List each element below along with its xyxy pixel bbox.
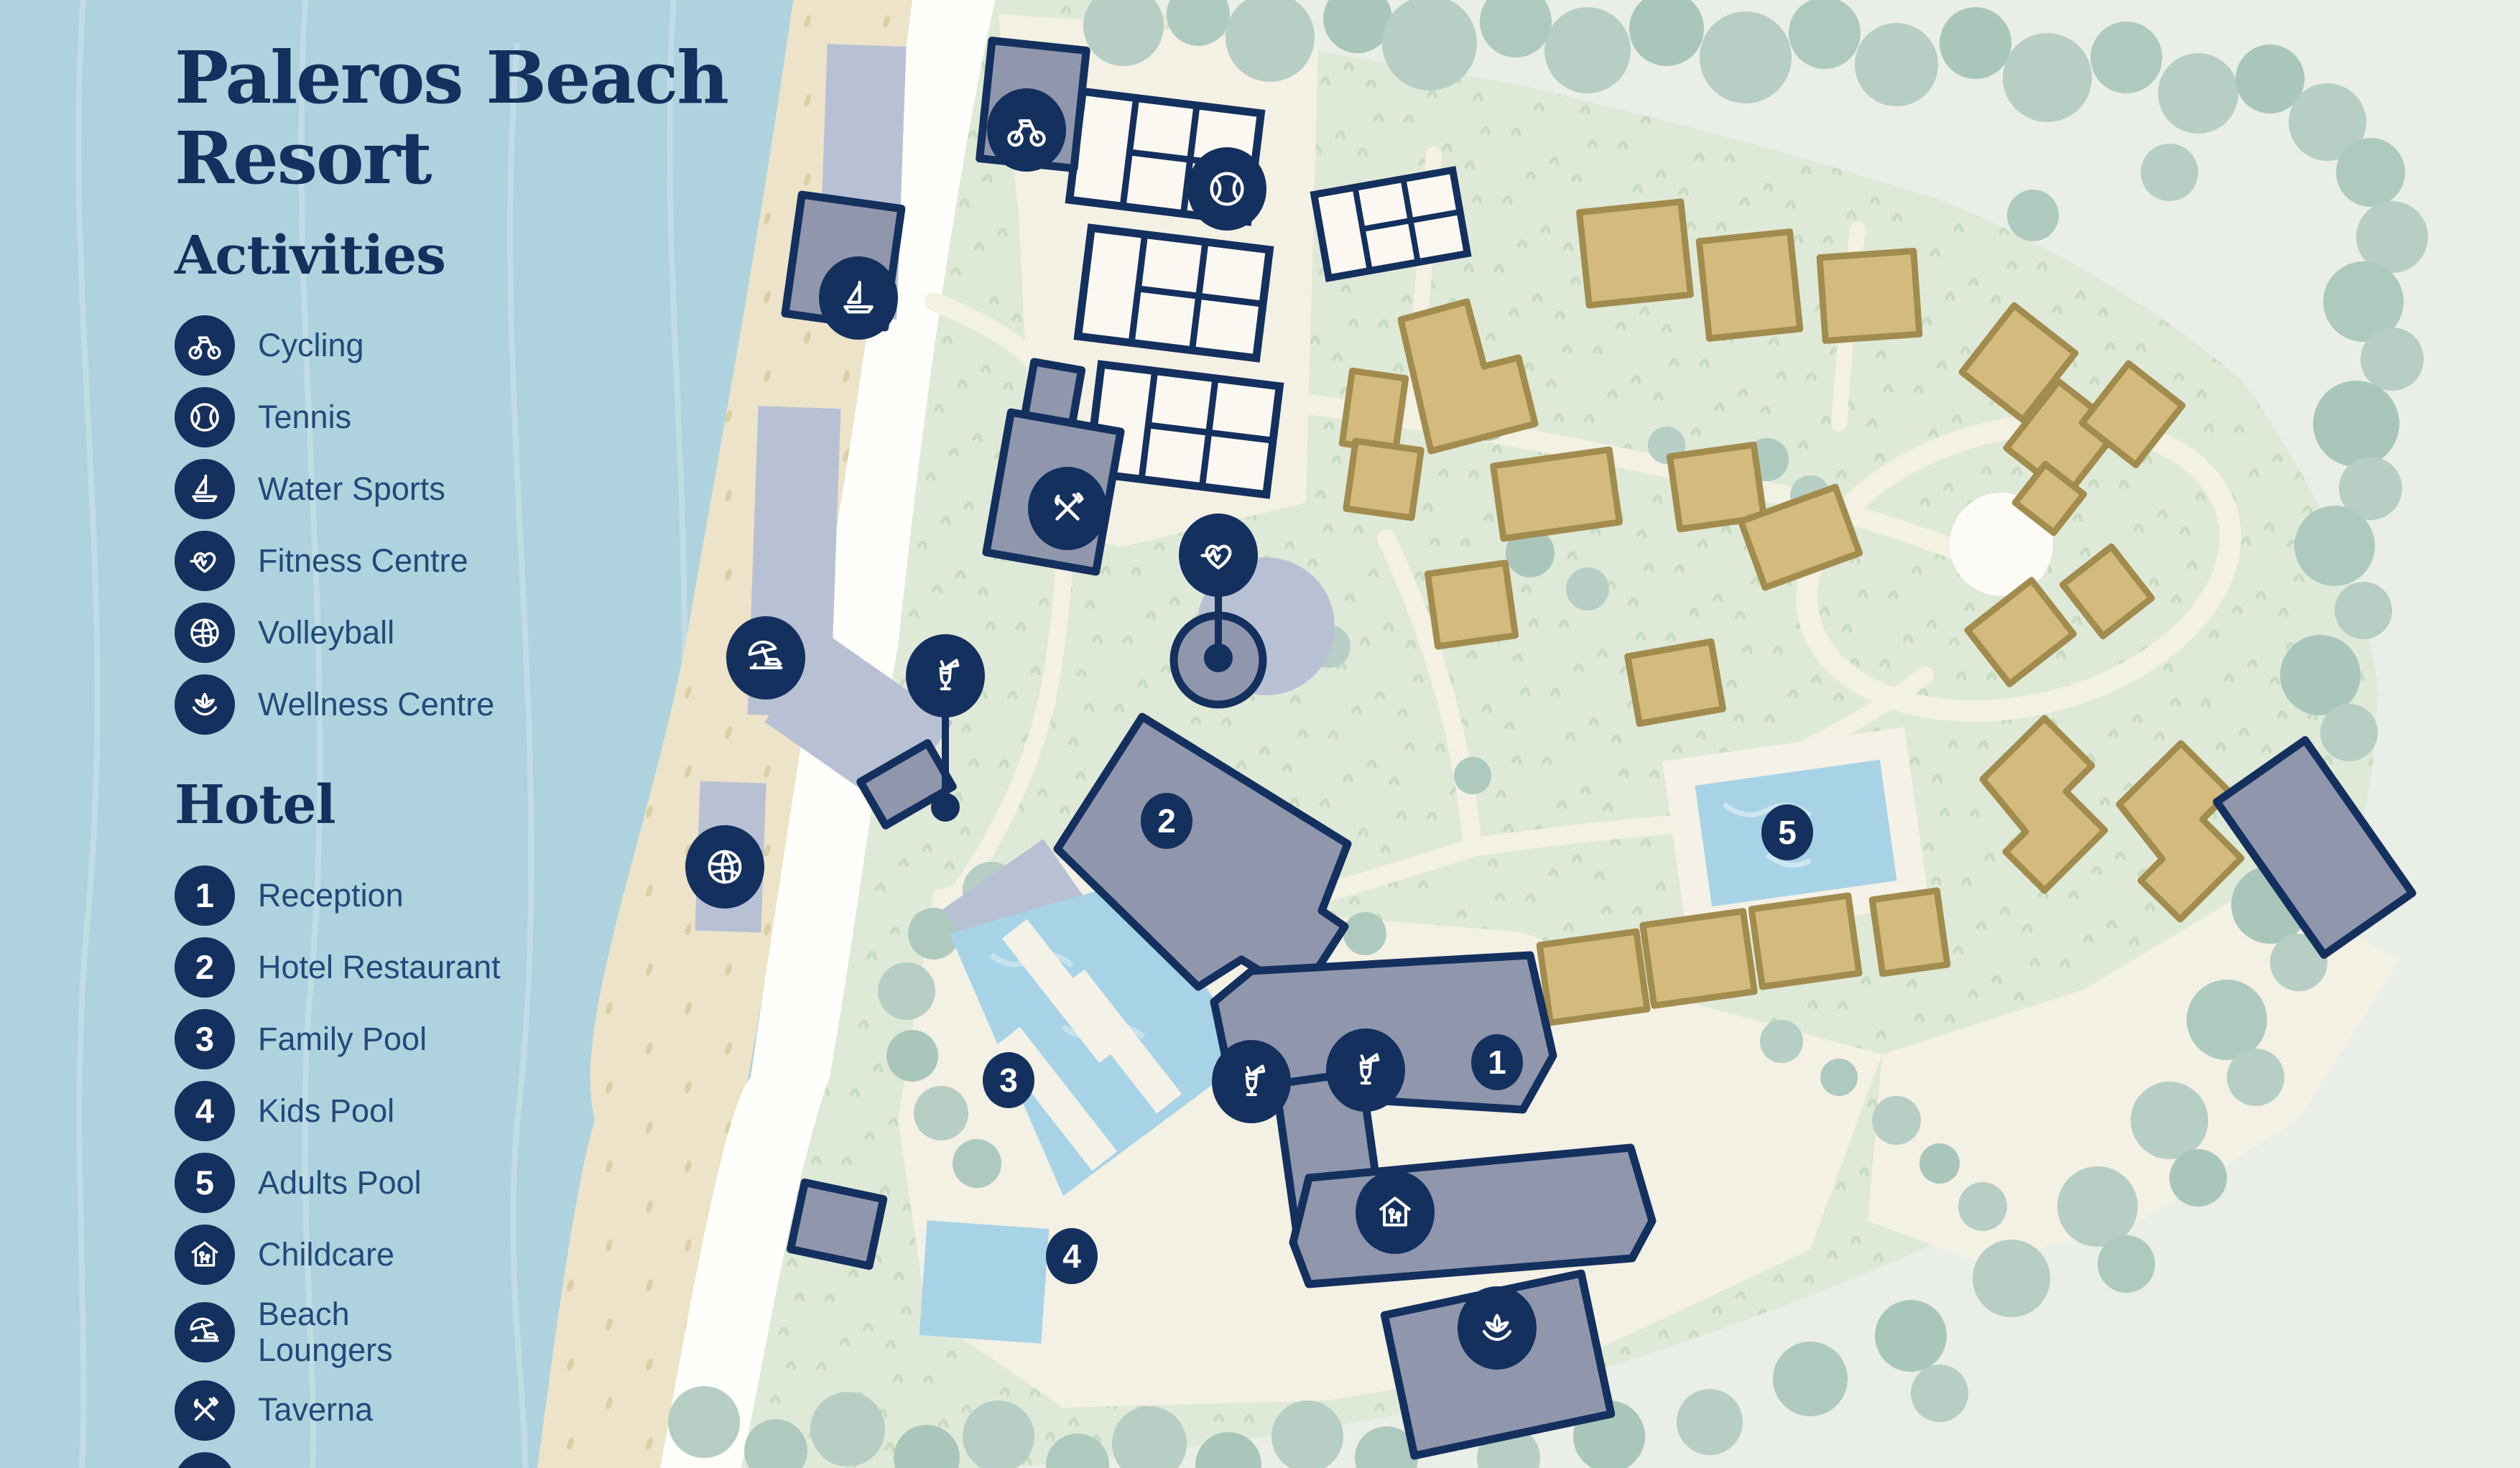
wellness-icon <box>1474 1305 1520 1351</box>
kids-pool <box>919 1220 1050 1343</box>
legend-item-label: Cycling <box>258 327 364 363</box>
legend-item-water-sports: Water Sports <box>175 459 893 519</box>
volleyball-icon <box>175 603 235 663</box>
map-marker-childcare <box>1356 1171 1435 1254</box>
map-badge-reception: 1 <box>1471 1034 1523 1090</box>
water-sports-icon <box>175 459 235 519</box>
wellness-icon <box>175 674 235 735</box>
map-marker-bar-garden <box>906 634 985 717</box>
map-marker-wellness <box>1458 1286 1537 1370</box>
map-badge-adults-pool: 5 <box>1761 804 1813 860</box>
map-marker-bar-pool <box>1212 1040 1291 1123</box>
legend-item-label: Taverna <box>258 1392 373 1428</box>
number-4-badge: 4 <box>175 1081 235 1141</box>
map-badge-kids-pool: 4 <box>1046 1228 1098 1284</box>
legend-item-label: Kids Pool <box>258 1093 394 1129</box>
legend-item-reception: 1 Reception <box>175 865 893 926</box>
legend-item-label: Childcare <box>258 1237 394 1273</box>
map-badge-family-pool: 3 <box>983 1052 1034 1108</box>
tennis-icon <box>175 387 235 447</box>
hotel-heading: Hotel <box>175 776 893 835</box>
map-marker-tennis <box>1187 147 1266 231</box>
legend-panel: Paleros Beach Resort Activities Cycling … <box>175 37 893 1468</box>
map-marker-cycling <box>987 88 1066 172</box>
legend-item-label: Fitness Centre <box>258 543 468 579</box>
legend-item-cycling: Cycling <box>175 315 893 376</box>
taverna-icon <box>1044 486 1090 531</box>
fitness-icon <box>175 531 235 591</box>
legend-item-label: Volleyball <box>258 615 394 651</box>
legend-item-bars: Bars <box>175 1452 893 1468</box>
legend-item-beach-loungers: Beach Loungers <box>175 1296 893 1369</box>
map-marker-taverna <box>1028 467 1107 550</box>
childcare-icon <box>1372 1189 1418 1235</box>
childcare-icon <box>175 1225 235 1285</box>
fitness-icon <box>1195 532 1241 578</box>
cycling-icon <box>175 315 235 376</box>
legend-item-label: Tennis <box>258 399 351 435</box>
legend-item-taverna: Taverna <box>175 1380 893 1441</box>
legend-item-label: Hotel Restaurant <box>258 949 501 985</box>
map-marker-bar-lobby <box>1326 1028 1405 1112</box>
number-3-badge: 3 <box>175 1009 235 1069</box>
bars-icon <box>922 653 968 699</box>
legend-item-label: Water Sports <box>258 471 445 507</box>
number-5-badge: 5 <box>175 1153 235 1213</box>
tennis-icon <box>1204 166 1250 212</box>
number-2-badge: 2 <box>175 937 235 998</box>
taverna-icon <box>175 1380 235 1441</box>
legend-item-label: Wellness Centre <box>258 687 494 723</box>
activities-heading: Activities <box>175 227 893 285</box>
map-badge-hotel-restaurant: 2 <box>1141 793 1192 849</box>
legend-item-wellness: Wellness Centre <box>175 674 893 735</box>
legend-item-volleyball: Volleyball <box>175 603 893 663</box>
number-1-badge: 1 <box>175 865 235 926</box>
legend-item-hotel-restaurant: 2 Hotel Restaurant <box>175 937 893 998</box>
legend-item-adults-pool: 5 Adults Pool <box>175 1153 893 1213</box>
bars-icon <box>175 1452 235 1468</box>
bars-icon <box>1228 1059 1274 1105</box>
cycling-icon <box>1004 107 1050 153</box>
legend-item-family-pool: 3 Family Pool <box>175 1009 893 1069</box>
bars-icon <box>1343 1047 1389 1093</box>
legend-item-label: Beach Loungers <box>258 1296 452 1369</box>
legend-item-label: Adults Pool <box>258 1165 422 1201</box>
map-marker-fitness <box>1179 514 1258 597</box>
legend-item-tennis: Tennis <box>175 387 893 447</box>
loungers-icon <box>175 1302 235 1362</box>
legend-item-childcare: Childcare <box>175 1225 893 1285</box>
legend-item-kids-pool: 4 Kids Pool <box>175 1081 893 1141</box>
legend-item-label: Reception <box>258 878 404 914</box>
legend-item-label: Family Pool <box>258 1021 427 1057</box>
resort-map-page: 1 2 3 4 5 Paleros Beach Resort Activitie… <box>0 0 2520 1468</box>
page-title: Paleros Beach Resort <box>175 37 893 198</box>
legend-item-fitness: Fitness Centre <box>175 531 893 591</box>
legend-item-label: Bars <box>258 1464 325 1468</box>
